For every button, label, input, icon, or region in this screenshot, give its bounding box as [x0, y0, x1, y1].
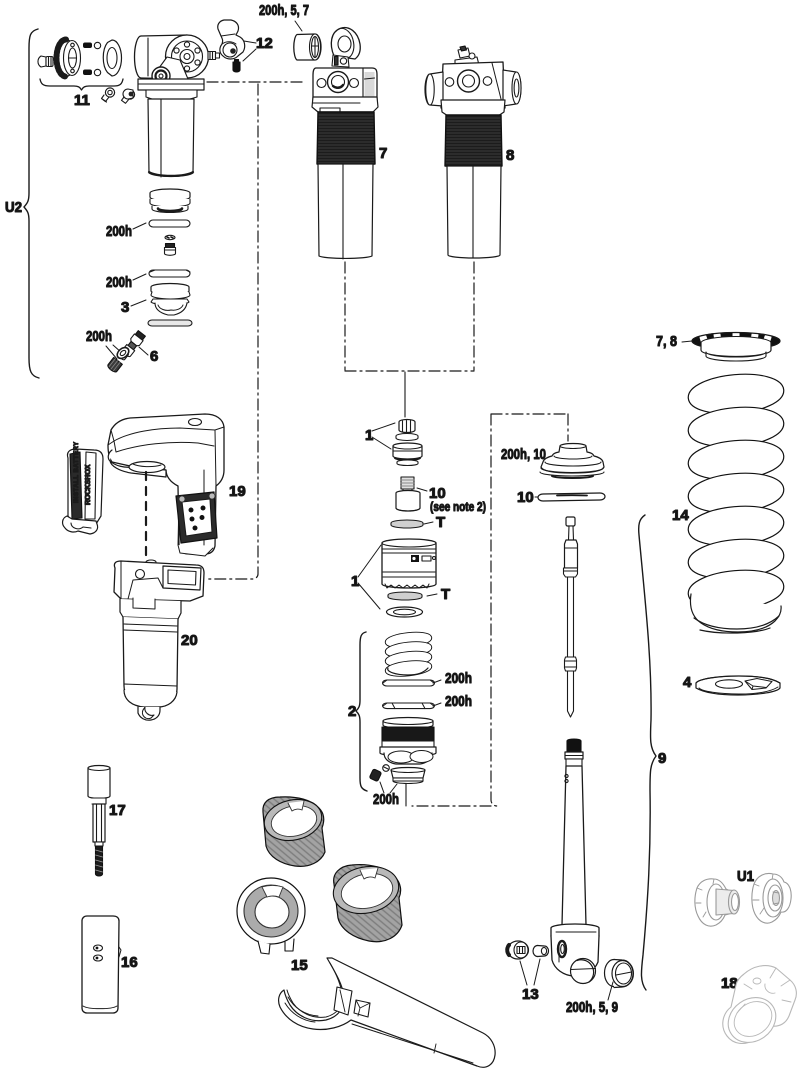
- svg-text:16: 16: [121, 954, 138, 971]
- svg-text:11: 11: [74, 92, 90, 109]
- svg-text:4: 4: [683, 674, 692, 691]
- svg-text:19: 19: [229, 483, 246, 500]
- svg-text:ROCKSHOX: ROCKSHOX: [85, 464, 92, 505]
- svg-text:1: 1: [365, 427, 373, 444]
- svg-text:T: T: [436, 514, 445, 531]
- svg-text:13: 13: [522, 986, 539, 1003]
- svg-text:T: T: [441, 586, 450, 603]
- svg-text:10: 10: [517, 489, 534, 506]
- svg-text:15: 15: [291, 957, 308, 974]
- svg-text:7: 7: [379, 145, 387, 162]
- svg-text:200h: 200h: [86, 328, 112, 345]
- svg-text:200h, 5, 9: 200h, 5, 9: [566, 999, 618, 1016]
- svg-text:1: 1: [351, 573, 359, 590]
- svg-text:3: 3: [121, 299, 129, 316]
- svg-text:200h: 200h: [445, 693, 472, 710]
- svg-text:14: 14: [672, 507, 689, 524]
- svg-text:200h, 10: 200h, 10: [501, 446, 546, 463]
- svg-text:7, 8: 7, 8: [656, 333, 677, 350]
- svg-text:(see note 2): (see note 2): [430, 500, 486, 514]
- svg-text:U2: U2: [5, 199, 22, 216]
- svg-text:200h: 200h: [106, 223, 132, 240]
- svg-text:6: 6: [150, 348, 158, 365]
- svg-text:17: 17: [109, 802, 126, 819]
- svg-text:U1: U1: [737, 868, 754, 885]
- svg-text:9: 9: [658, 750, 666, 767]
- svg-text:200h, 5, 7: 200h, 5, 7: [259, 2, 309, 19]
- svg-text:20: 20: [181, 632, 198, 649]
- svg-text:200h: 200h: [106, 274, 132, 291]
- svg-text:200h: 200h: [445, 670, 472, 687]
- svg-text:12: 12: [256, 35, 273, 52]
- svg-text:2: 2: [348, 703, 356, 720]
- svg-text:8: 8: [506, 147, 514, 164]
- svg-text:INSTALL BATTERY: INSTALL BATTERY: [74, 441, 80, 503]
- svg-text:200h: 200h: [373, 791, 399, 808]
